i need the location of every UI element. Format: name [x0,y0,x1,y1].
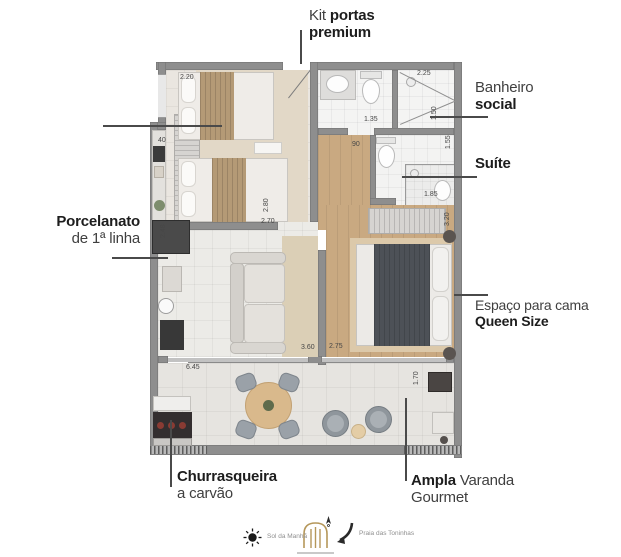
pillow [432,247,449,292]
dimension-label: 1.55 [445,135,452,149]
callout-text: a carvão [177,485,233,502]
callout-text: Churrasqueira [177,468,277,485]
leader-line-suite [402,176,477,178]
callout-banheiro-social: Banheiro social [475,80,533,114]
leader-line-queen [454,294,488,296]
dimension-label: 1.70 [413,371,420,385]
dimension-label: 1.35 [364,116,378,123]
blanket [212,158,246,222]
nightstand [443,230,456,243]
wall [158,356,168,363]
cooktop [160,320,184,350]
wall [318,250,326,365]
sink-basin [326,75,349,93]
table-plant [263,400,274,411]
dimension-label: 90 [352,141,360,148]
dimension-label: 2.25 [417,70,431,77]
pillow [181,107,196,134]
logo-caption [297,552,334,554]
leader-line-varanda [405,398,407,481]
legend: Sol da Manhã Praia das Toninhas [0,512,621,557]
wall [370,198,396,205]
dimension-line [188,362,454,363]
leader-line-banheiro [430,116,488,118]
callout-suite: Suíte [475,156,511,173]
callout-text: Varanda [460,472,514,489]
dimension-label: 2.20 [180,74,194,81]
grill-stand [153,438,192,446]
suite-wardrobe [368,208,446,234]
brick-hatch [150,446,208,454]
microwave [153,146,165,162]
plant [154,200,165,211]
pillow [432,296,449,341]
side-table [351,424,366,439]
blanket [200,72,234,140]
sofa-cushion [244,304,285,343]
pillow [181,161,196,187]
sofa-back [230,263,244,343]
bedroom-window [158,74,166,118]
dimension-label: 6.45 [186,364,200,371]
wall [318,128,348,135]
wall [310,62,318,222]
dimension-label: 2.80 [263,198,270,212]
leader-line-churrasqueira [170,420,172,487]
varanda-cabinet [428,372,452,392]
curved-arrow-icon [335,521,356,545]
callout-porcelanato: Porcelanato de 1ª linha [40,214,140,248]
shelf-item [154,166,164,178]
wall [370,135,376,205]
wall [392,70,398,130]
callout-text: Banheiro [475,79,533,96]
kitchen-cabinet [162,266,182,292]
varanda-floor [158,363,454,445]
callout-kit-portas: Kitportas premium [309,8,375,42]
varanda-stool [440,436,448,444]
callout-text: Gourmet [411,489,468,506]
grill-knob [157,422,164,429]
sun-icon [243,528,262,547]
callout-varanda-gourmet: AmplaVaranda Gourmet [411,473,514,507]
kitchen-sink [158,298,174,314]
callout-text: Porcelanato [56,213,140,230]
callout-text: Ampla [411,472,456,489]
wall [374,128,454,135]
wall [454,62,462,458]
callout-text: Queen Size [475,313,548,329]
lounge-chair-cushion [327,415,344,432]
dimension-label: 1.50 [431,106,438,120]
callout-churrasqueira: Churrasqueira a carvão [177,469,277,503]
living-rug [282,236,318,357]
callout-text: social [475,96,516,113]
sofa-armrest [230,342,286,354]
beach-label: Praia das Toninhas [359,530,414,537]
grill-knob [179,422,186,429]
leader-line-porcelanato [112,257,168,259]
dimension-label: 3.20 [444,212,451,226]
dimension-label: 2.48 [160,224,167,238]
callout-queen-size: Espaço para cama Queen Size [475,298,589,330]
dimension-label: 3.60 [301,344,315,351]
north-compass-icon [323,515,334,527]
toilet [360,71,382,79]
varanda-table [432,412,454,434]
lounge-chair-cushion [370,411,387,428]
callout-text: Suíte [475,155,511,172]
callout-text: de 1ª linha [72,230,140,247]
pillow [181,191,196,217]
queen-blanket [374,244,430,346]
callout-text: Kit [309,7,326,24]
floorplan-canvas: Kitportas premium Banheiro social Suíte … [0,0,621,557]
wall [312,62,454,70]
dimension-label: 1.85 [424,191,438,198]
toilet [376,137,396,144]
sun-label: Sol da Manhã [267,533,307,540]
floorplan [148,60,464,462]
callout-text: premium [309,24,371,41]
callout-text: Espaço para cama [475,297,589,313]
leader-line-kit-portas [300,30,302,64]
leader-line-left [103,125,222,127]
dimension-label: 2.75 [329,343,343,350]
sofa-cushion [244,264,285,303]
nightstand [443,347,456,360]
brick-hatch [404,446,462,454]
grill-counter [153,396,191,411]
callout-text: portas [330,7,375,24]
fridge [152,220,190,254]
dimension-label: 2.70 [261,218,275,225]
wall [156,62,283,70]
bedside-shelf [254,142,282,154]
dimension-label: 40 [158,137,166,144]
